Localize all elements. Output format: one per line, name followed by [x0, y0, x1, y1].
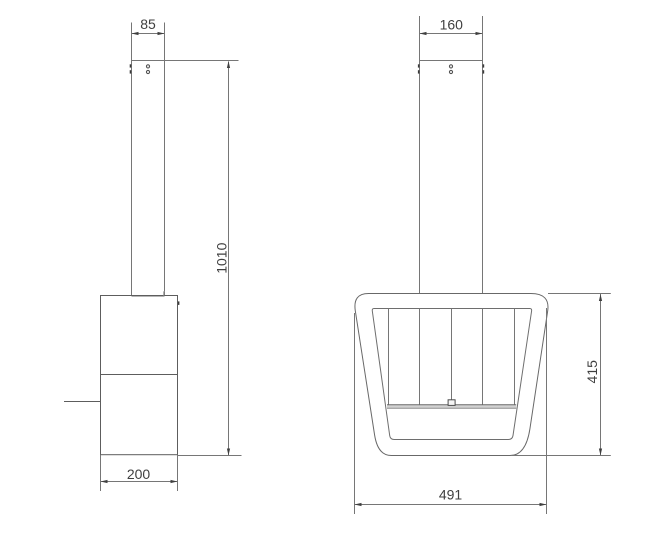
- svg-text:160: 160: [440, 17, 464, 33]
- svg-text:1010: 1010: [213, 242, 229, 273]
- svg-text:200: 200: [127, 466, 151, 482]
- svg-text:491: 491: [439, 486, 463, 502]
- svg-text:85: 85: [140, 16, 156, 32]
- svg-text:415: 415: [584, 360, 600, 384]
